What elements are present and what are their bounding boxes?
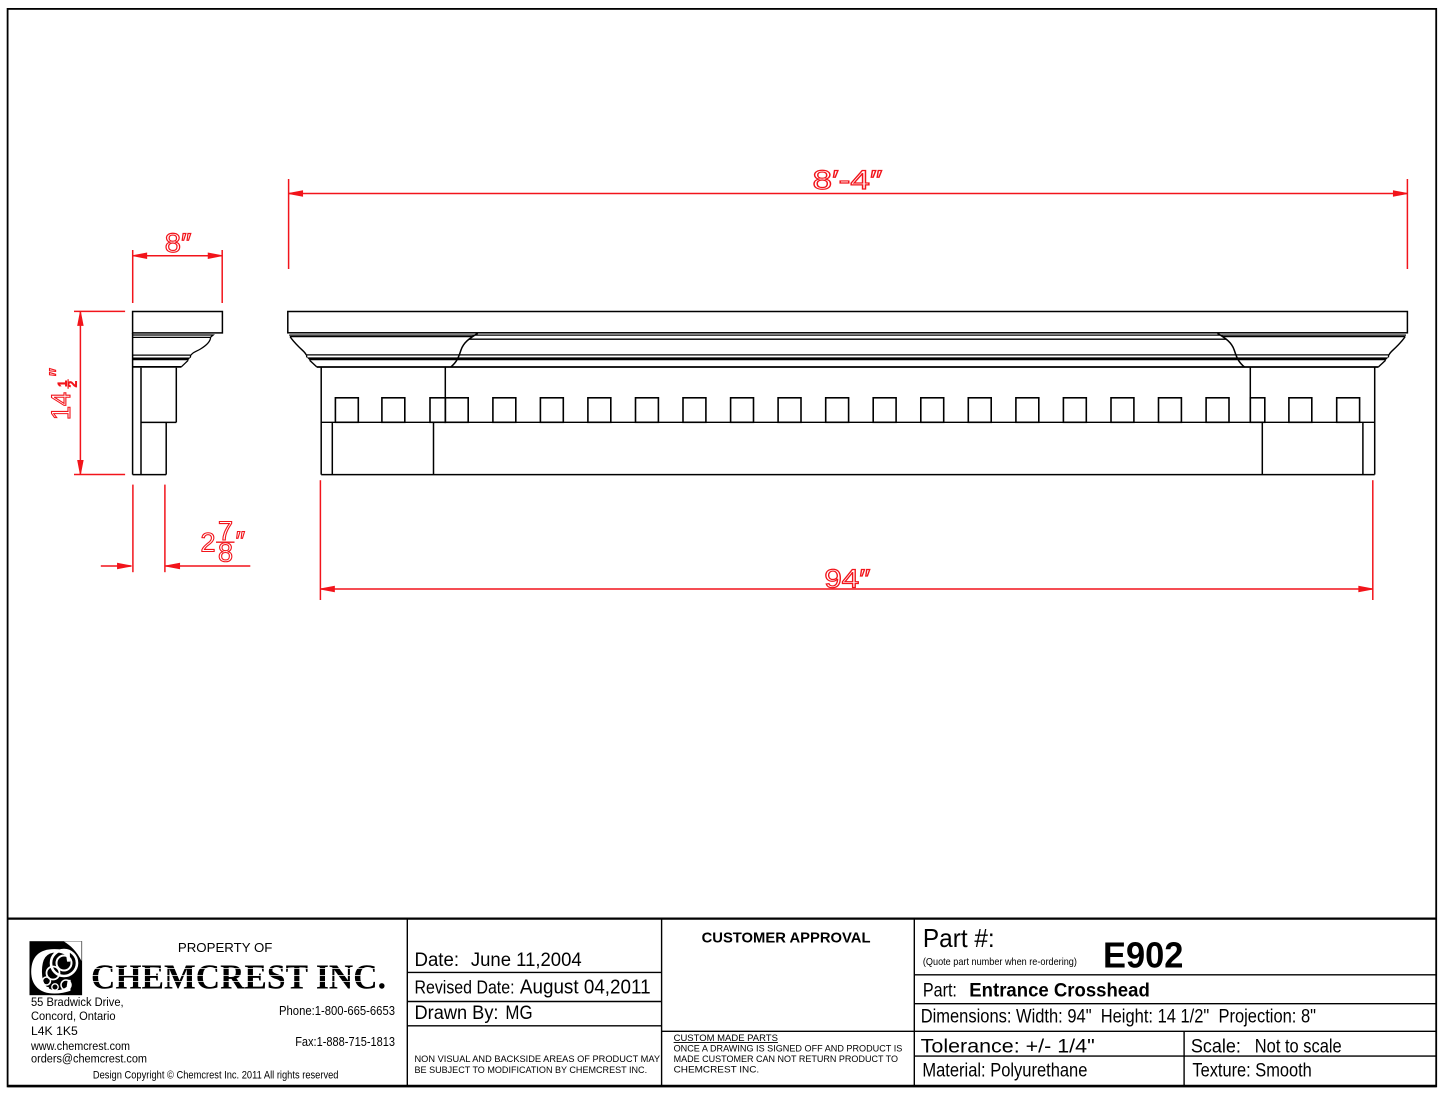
svg-text:PROPERTY OF: PROPERTY OF: [178, 940, 273, 955]
svg-text:55 Bradwick Drive,: 55 Bradwick Drive,: [31, 995, 124, 1009]
svg-text:Entrance Crosshead: Entrance Crosshead: [969, 980, 1150, 1001]
svg-text:8′-4″: 8′-4″: [813, 165, 883, 195]
svg-text:CHEMCREST INC.: CHEMCREST INC.: [91, 958, 386, 997]
svg-text:CUSTOM MADE PARTS: CUSTOM MADE PARTS: [674, 1033, 778, 1043]
svg-text:Design Copyright © Chemcrest I: Design Copyright © Chemcrest Inc. 2011 A…: [93, 1069, 339, 1081]
svg-text:Revised Date:: Revised Date:: [415, 978, 515, 998]
svg-text:Dimensions: Width: 94" Height: Dimensions: Width: 94" Height: 14 1/2" P…: [921, 1006, 1316, 1027]
svg-text:L4K 1K5: L4K 1K5: [31, 1024, 78, 1038]
svg-text:June 11,2004: June 11,2004: [471, 950, 582, 971]
svg-text:8: 8: [218, 538, 233, 568]
svg-text:MG: MG: [505, 1003, 532, 1024]
svg-text:Scale:: Scale:: [1191, 1036, 1241, 1057]
svg-text:Part #:: Part #:: [923, 923, 995, 953]
svg-text:CUSTOMER APPROVAL: CUSTOMER APPROVAL: [702, 929, 871, 946]
svg-text:2: 2: [67, 381, 79, 387]
svg-text:E902: E902: [1103, 934, 1183, 975]
svg-text:″: ″: [236, 526, 246, 556]
svg-text:″: ″: [45, 368, 72, 377]
svg-text:(Quote part number when re-ord: (Quote part number when re-ordering): [923, 956, 1077, 968]
svg-text:BE SUBJECT TO MODIFICATION BY: BE SUBJECT TO MODIFICATION BY CHEMCREST …: [415, 1065, 648, 1075]
svg-text:CHEMCREST INC.: CHEMCREST INC.: [674, 1065, 760, 1075]
svg-text:Material: Polyurethane: Material: Polyurethane: [922, 1061, 1087, 1082]
svg-text:Concord, Ontario: Concord, Ontario: [31, 1009, 116, 1023]
svg-text:Drawn By:: Drawn By:: [415, 1003, 499, 1024]
svg-text:Not to scale: Not to scale: [1255, 1036, 1342, 1057]
svg-text:Fax:1-888-715-1813: Fax:1-888-715-1813: [295, 1034, 395, 1049]
svg-text:Tolerance: +/- 1/4": Tolerance: +/- 1/4": [921, 1036, 1095, 1057]
svg-text:14: 14: [46, 392, 76, 420]
svg-text:ONCE A DRAWING IS SIGNED OFF A: ONCE A DRAWING IS SIGNED OFF AND PRODUCT…: [674, 1044, 903, 1054]
svg-text:August 04,2011: August 04,2011: [520, 977, 651, 999]
svg-text:NON VISUAL AND BACKSIDE AREAS: NON VISUAL AND BACKSIDE AREAS OF PRODUCT…: [415, 1054, 661, 1064]
svg-text:MADE CUSTOMER CAN NOT RETURN P: MADE CUSTOMER CAN NOT RETURN PRODUCT TO: [674, 1054, 898, 1064]
svg-text:2: 2: [201, 528, 216, 558]
svg-text:Phone:1-800-665-6653: Phone:1-800-665-6653: [279, 1003, 395, 1018]
svg-text:94″: 94″: [824, 564, 870, 594]
svg-text:Texture: Smooth: Texture: Smooth: [1192, 1061, 1311, 1082]
svg-text:orders@chemcrest.com: orders@chemcrest.com: [31, 1051, 147, 1065]
svg-text:Date:: Date:: [415, 950, 460, 971]
svg-text:Part:: Part:: [923, 980, 957, 1001]
svg-text:8″: 8″: [165, 228, 192, 258]
